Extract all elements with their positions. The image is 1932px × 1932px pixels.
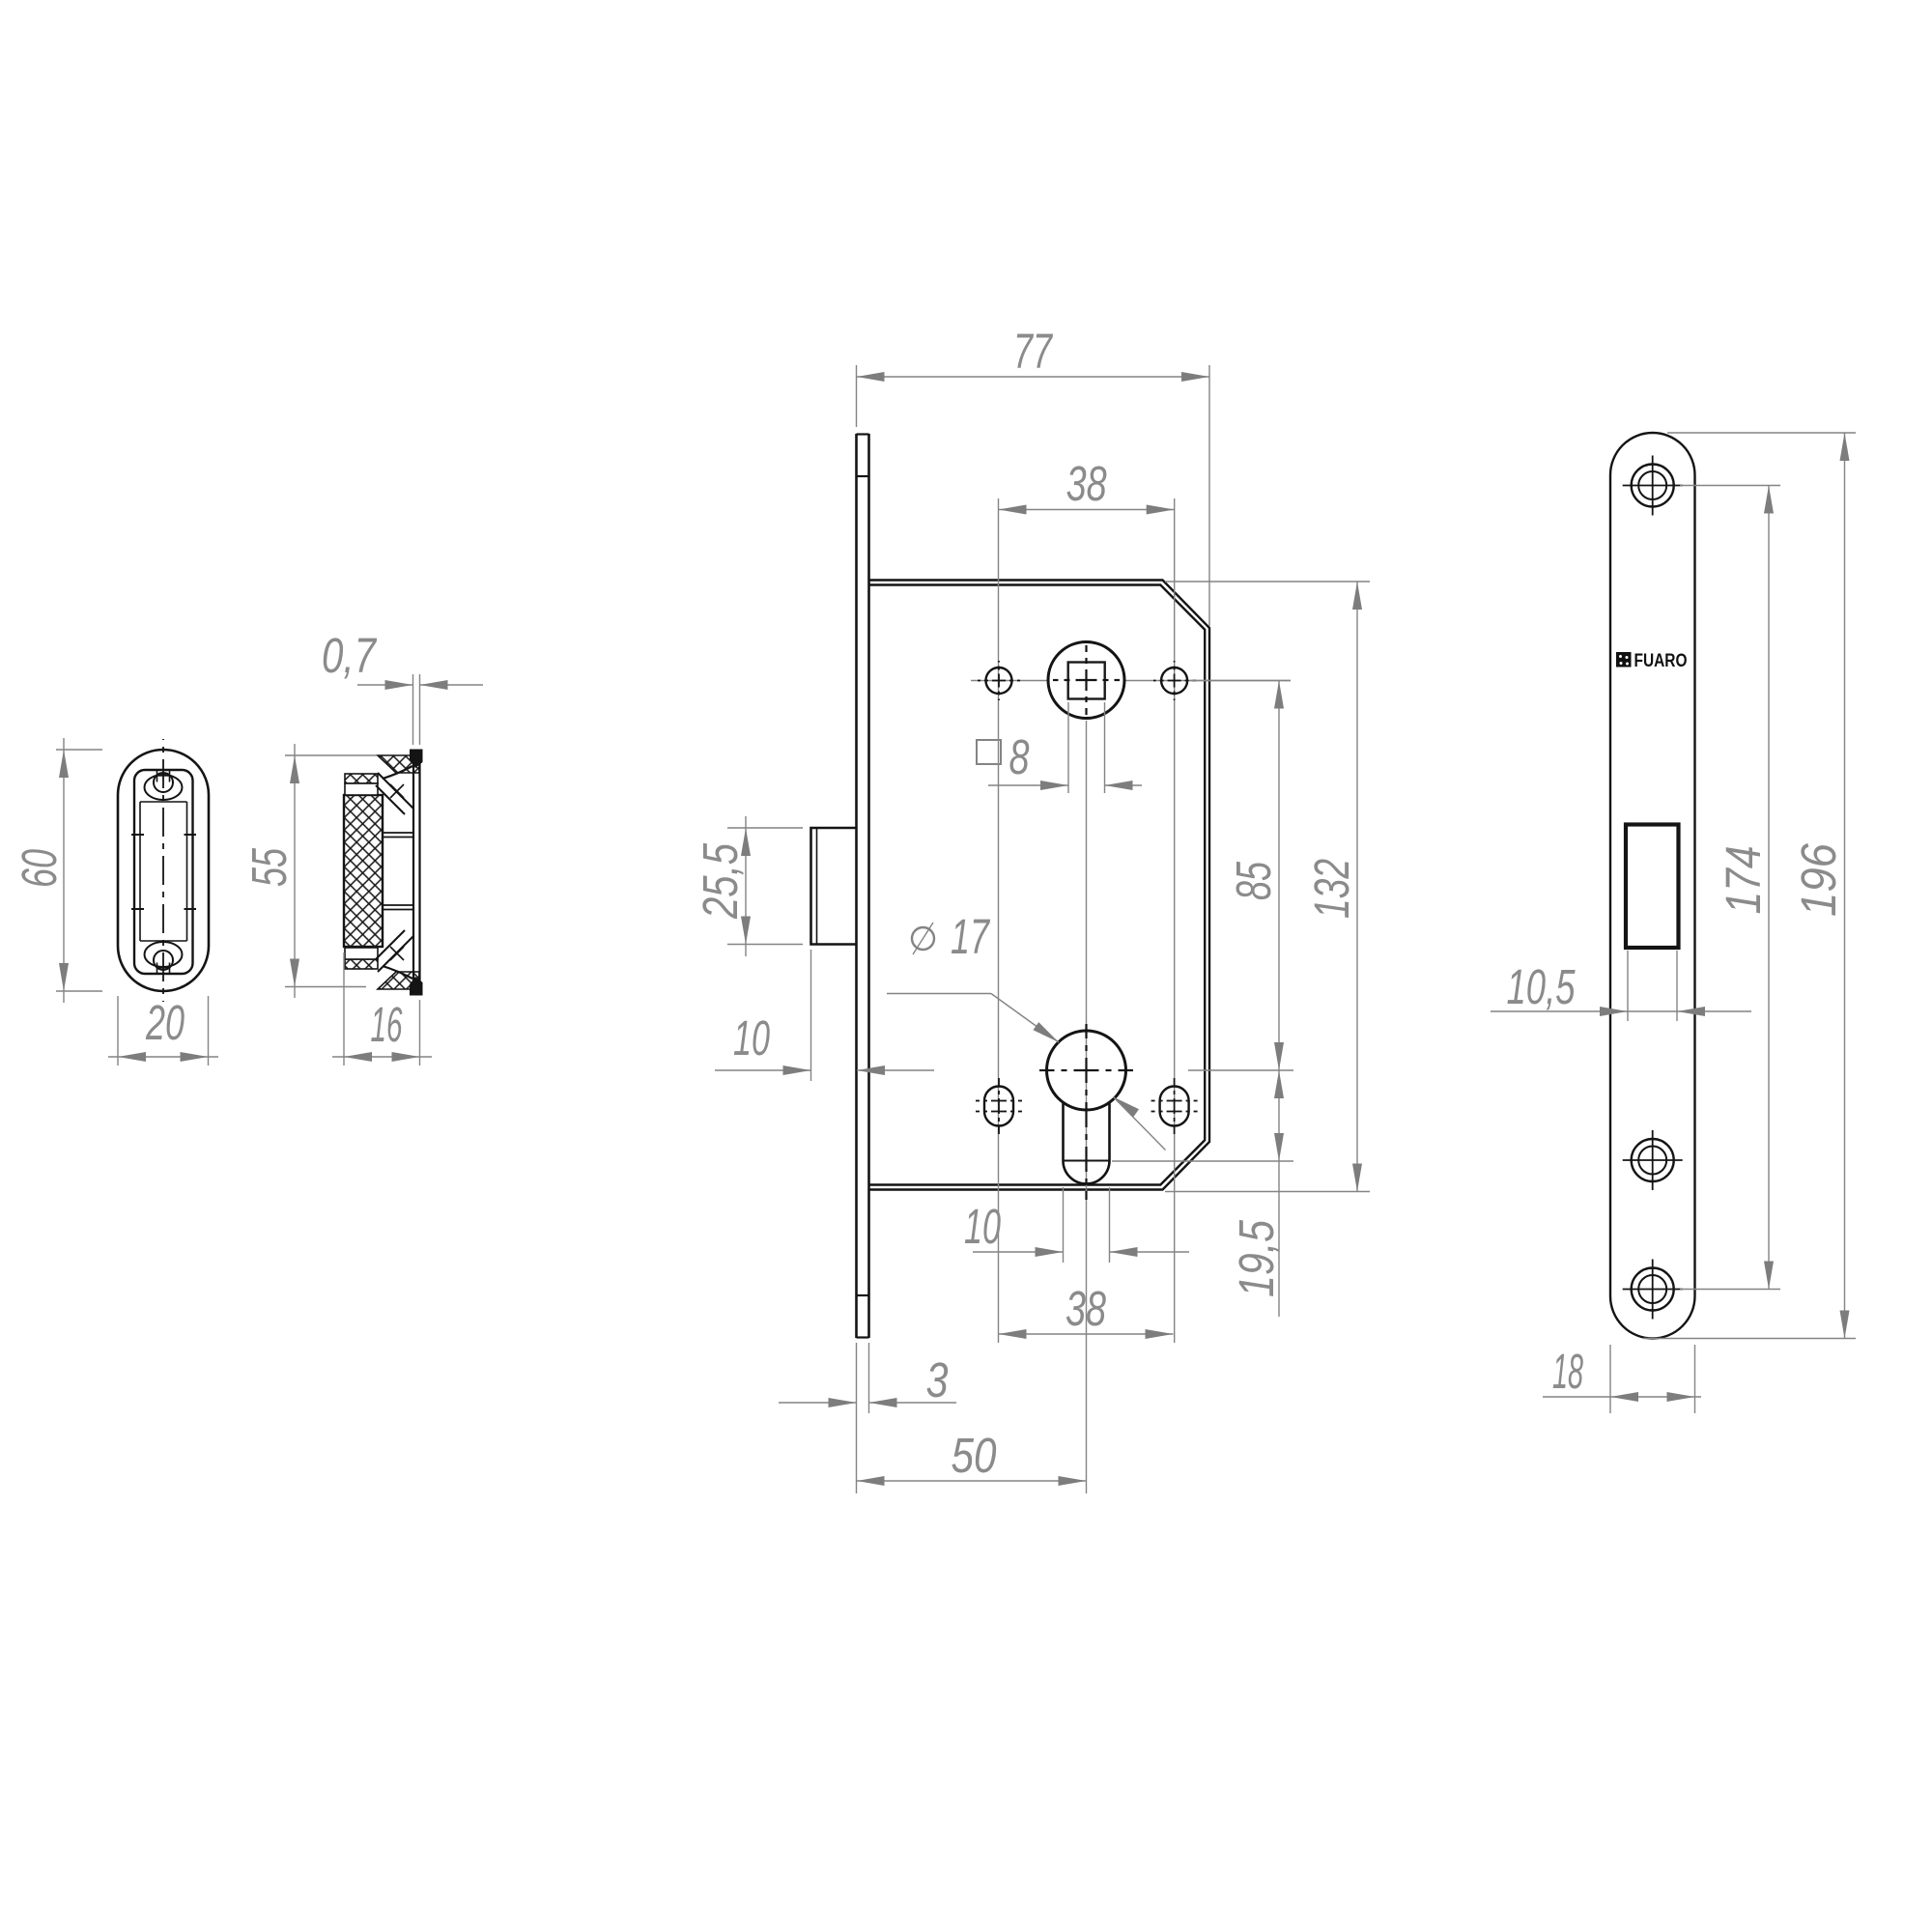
- svg-text:19,5: 19,5: [1229, 1219, 1284, 1297]
- svg-text:FUARO: FUARO: [1634, 651, 1688, 671]
- svg-text:60: 60: [12, 849, 67, 888]
- svg-text:0,7: 0,7: [322, 628, 377, 683]
- svg-text:20: 20: [145, 995, 185, 1050]
- svg-text:38: 38: [1066, 456, 1107, 511]
- svg-text:38: 38: [1065, 1281, 1106, 1336]
- svg-text:132: 132: [1304, 859, 1359, 919]
- svg-text:17: 17: [951, 909, 990, 964]
- svg-text:3: 3: [926, 1352, 949, 1407]
- svg-text:10: 10: [964, 1199, 1001, 1254]
- svg-text:16: 16: [371, 997, 403, 1052]
- svg-text:55: 55: [241, 848, 297, 887]
- svg-text:85: 85: [1226, 862, 1281, 900]
- svg-text:174: 174: [1716, 846, 1771, 915]
- svg-text:25,5: 25,5: [693, 843, 748, 920]
- svg-text:18: 18: [1552, 1344, 1583, 1399]
- svg-text:50: 50: [952, 1428, 997, 1483]
- svg-text:77: 77: [1013, 324, 1053, 379]
- svg-text:196: 196: [1791, 842, 1846, 917]
- svg-text:10: 10: [733, 1010, 770, 1065]
- svg-text:8: 8: [1009, 729, 1030, 784]
- svg-text:10,5: 10,5: [1507, 959, 1576, 1014]
